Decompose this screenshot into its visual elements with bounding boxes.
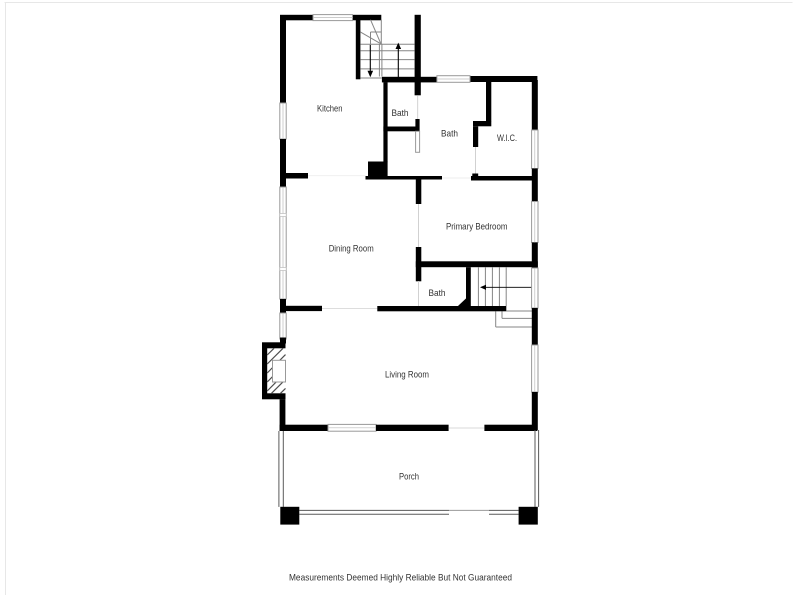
- svg-text:Measurements Deemed Highly Rel: Measurements Deemed Highly Reliable But …: [289, 573, 512, 584]
- svg-text:Porch: Porch: [399, 471, 419, 481]
- svg-text:Primary Bedroom: Primary Bedroom: [446, 222, 508, 232]
- svg-text:Kitchen: Kitchen: [317, 104, 343, 114]
- svg-text:Bath: Bath: [392, 108, 409, 118]
- svg-text:Bath: Bath: [429, 288, 446, 298]
- svg-text:W.I.C.: W.I.C.: [497, 133, 517, 143]
- svg-text:Dining Room: Dining Room: [329, 243, 374, 253]
- svg-text:Bath: Bath: [441, 128, 458, 138]
- svg-text:Living Room: Living Room: [385, 369, 429, 379]
